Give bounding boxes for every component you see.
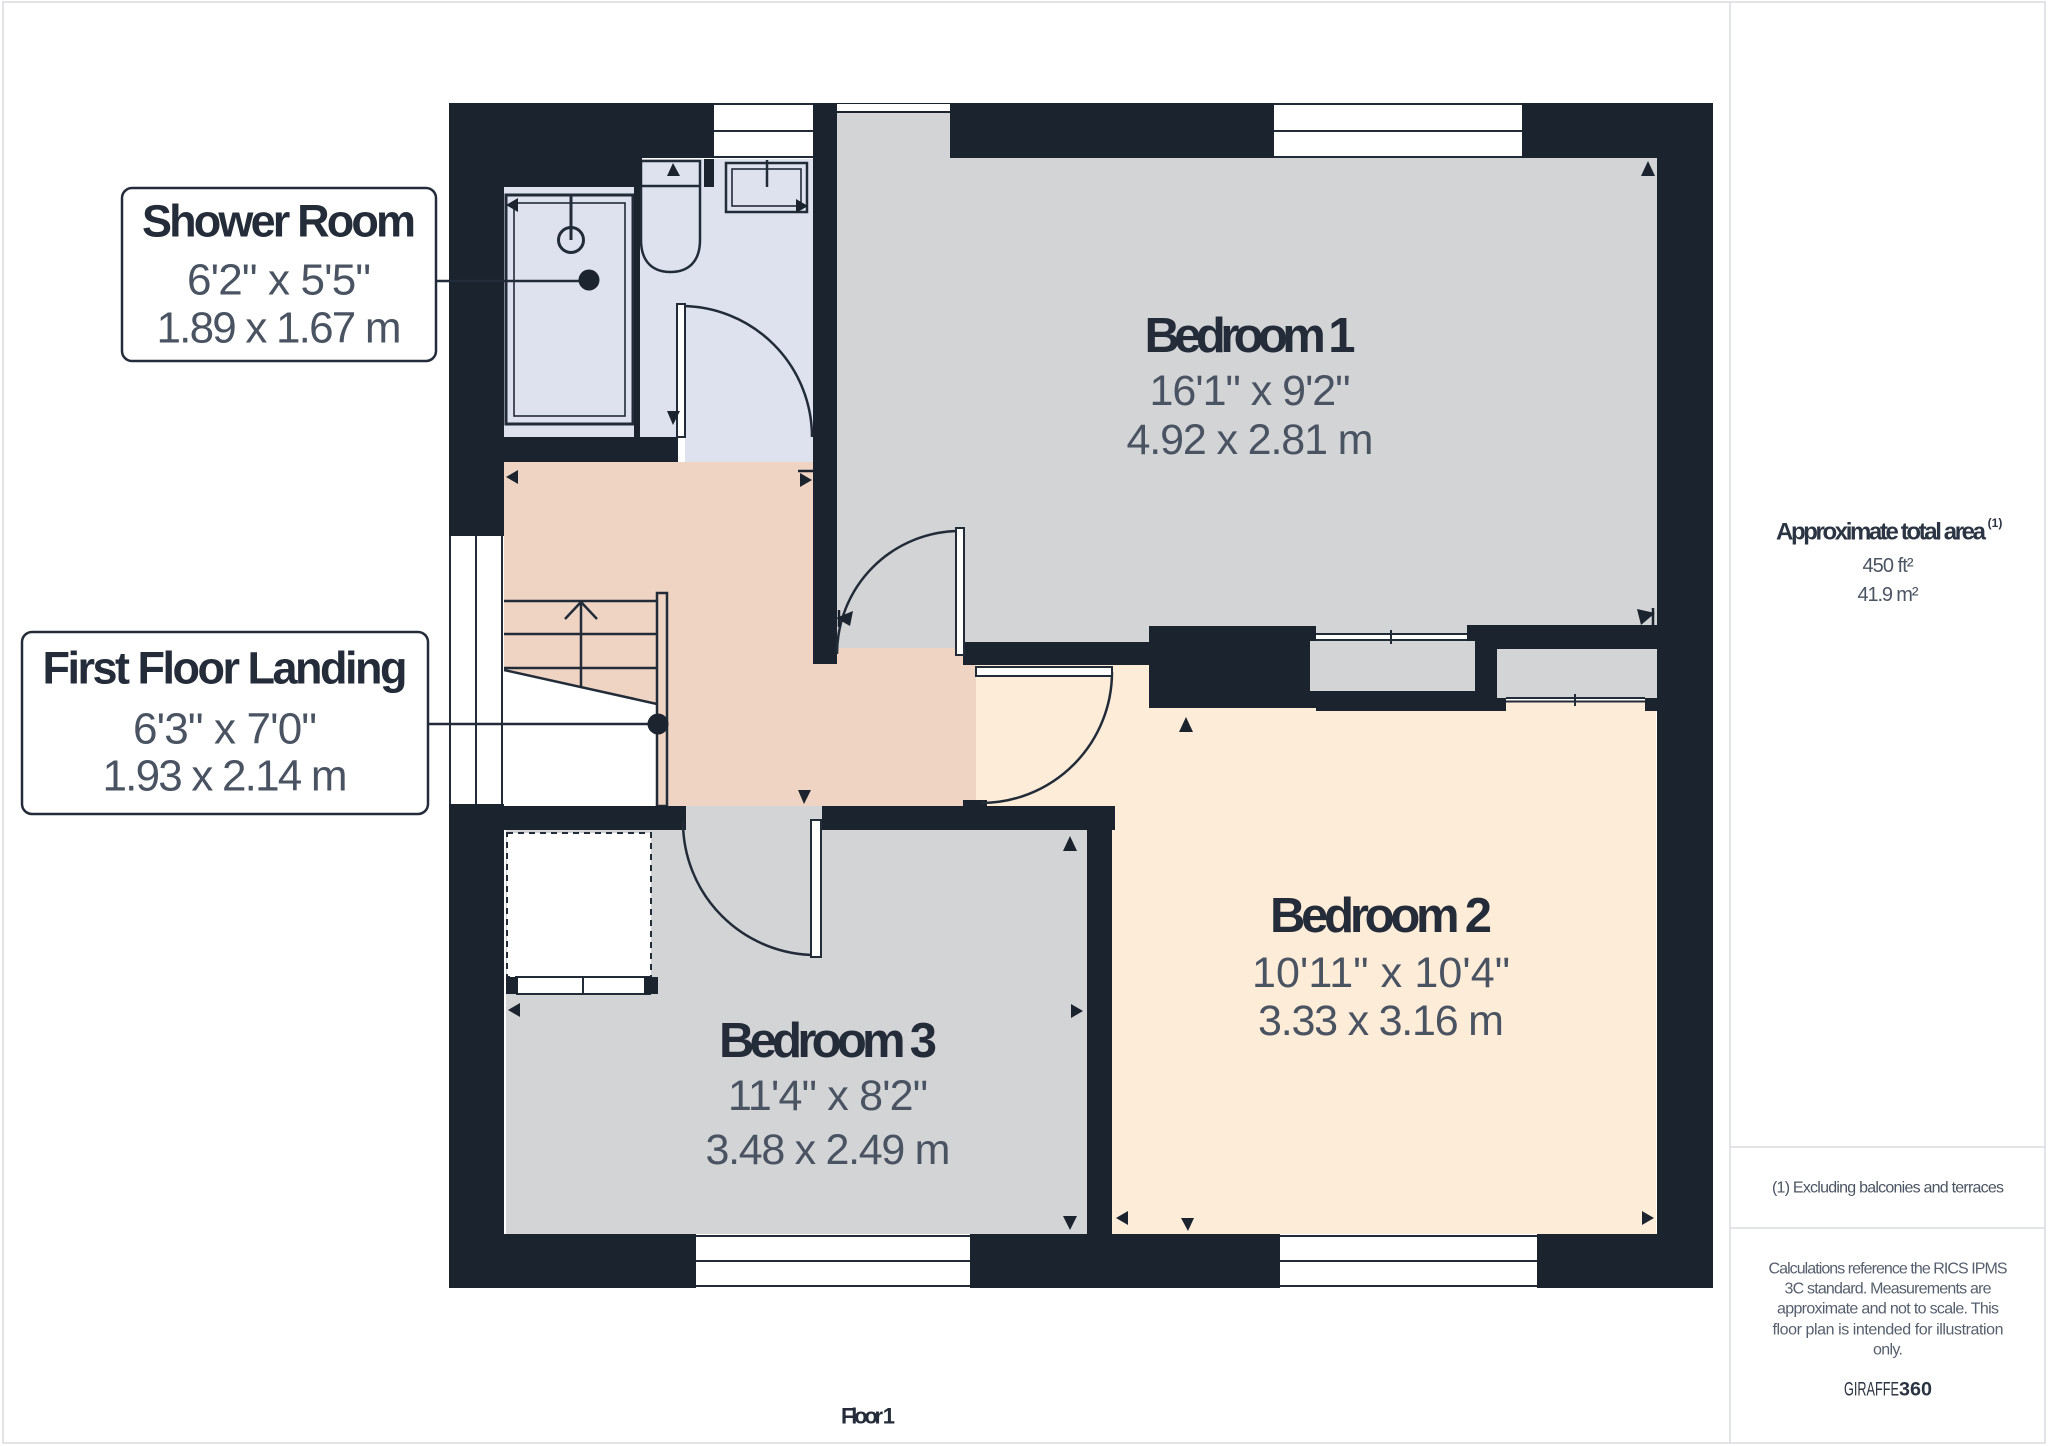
svg-text:approximate and not to scale.: approximate and not to scale. This [1777,1301,1999,1318]
svg-text:only.: only. [1873,1342,1903,1359]
svg-text:(1) Excluding balconies and te: (1) Excluding balconies and terraces [1772,1180,2004,1197]
svg-text:1.89 x 1.67 m: 1.89 x 1.67 m [157,304,402,353]
svg-text:4.92 x 2.81 m: 4.92 x 2.81 m [1127,416,1374,464]
svg-text:3C standard. Measurements are: 3C standard. Measurements are [1785,1281,1992,1298]
svg-text:Bedroom 2: Bedroom 2 [1270,889,1492,943]
svg-text:floor plan is intended for ill: floor plan is intended for illustration [1773,1322,2004,1339]
svg-text:6'2" x 5'5": 6'2" x 5'5" [187,256,371,305]
svg-text:First Floor Landing: First Floor Landing [43,643,408,694]
svg-text:11'4" x 8'2": 11'4" x 8'2" [728,1072,928,1120]
svg-text:Bedroom 1: Bedroom 1 [1145,309,1356,363]
svg-text:GIRAFFE: GIRAFFE [1844,1380,1899,1401]
svg-text:Calculations reference the RIC: Calculations reference the RICS IPMS [1769,1261,2008,1278]
svg-text:Shower Room: Shower Room [142,196,416,247]
svg-text:41.9 m²: 41.9 m² [1858,584,1919,606]
svg-text:360: 360 [1899,1380,1932,1401]
svg-text:Approximate total area: Approximate total area [1776,519,1987,546]
svg-text:10'11" x 10'4": 10'11" x 10'4" [1252,949,1510,997]
svg-text:16'1" x 9'2": 16'1" x 9'2" [1150,367,1351,415]
svg-text:450 ft²: 450 ft² [1863,555,1914,577]
svg-text:3.33 x 3.16 m: 3.33 x 3.16 m [1258,997,1504,1045]
svg-text:3.48 x 2.49 m: 3.48 x 2.49 m [706,1126,951,1174]
svg-text:1.93 x 2.14 m: 1.93 x 2.14 m [103,752,348,801]
svg-text:(1): (1) [1988,516,2003,530]
svg-text:6'3" x 7'0": 6'3" x 7'0" [133,705,317,754]
svg-text:Bedroom 3: Bedroom 3 [719,1014,937,1068]
svg-text:Floor 1: Floor 1 [841,1404,895,1429]
